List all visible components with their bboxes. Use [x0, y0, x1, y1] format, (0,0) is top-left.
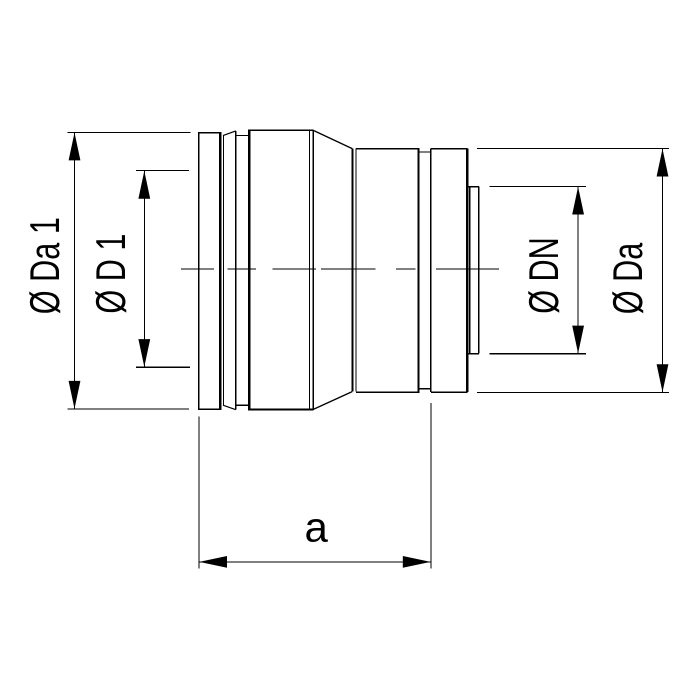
svg-text:Ø Da: Ø Da — [604, 242, 651, 314]
svg-text:Ø DN: Ø DN — [521, 237, 568, 314]
svg-text:a: a — [305, 504, 329, 551]
svg-text:Ø Da 1: Ø Da 1 — [21, 217, 68, 314]
svg-text:Ø D 1: Ø D 1 — [87, 234, 134, 314]
